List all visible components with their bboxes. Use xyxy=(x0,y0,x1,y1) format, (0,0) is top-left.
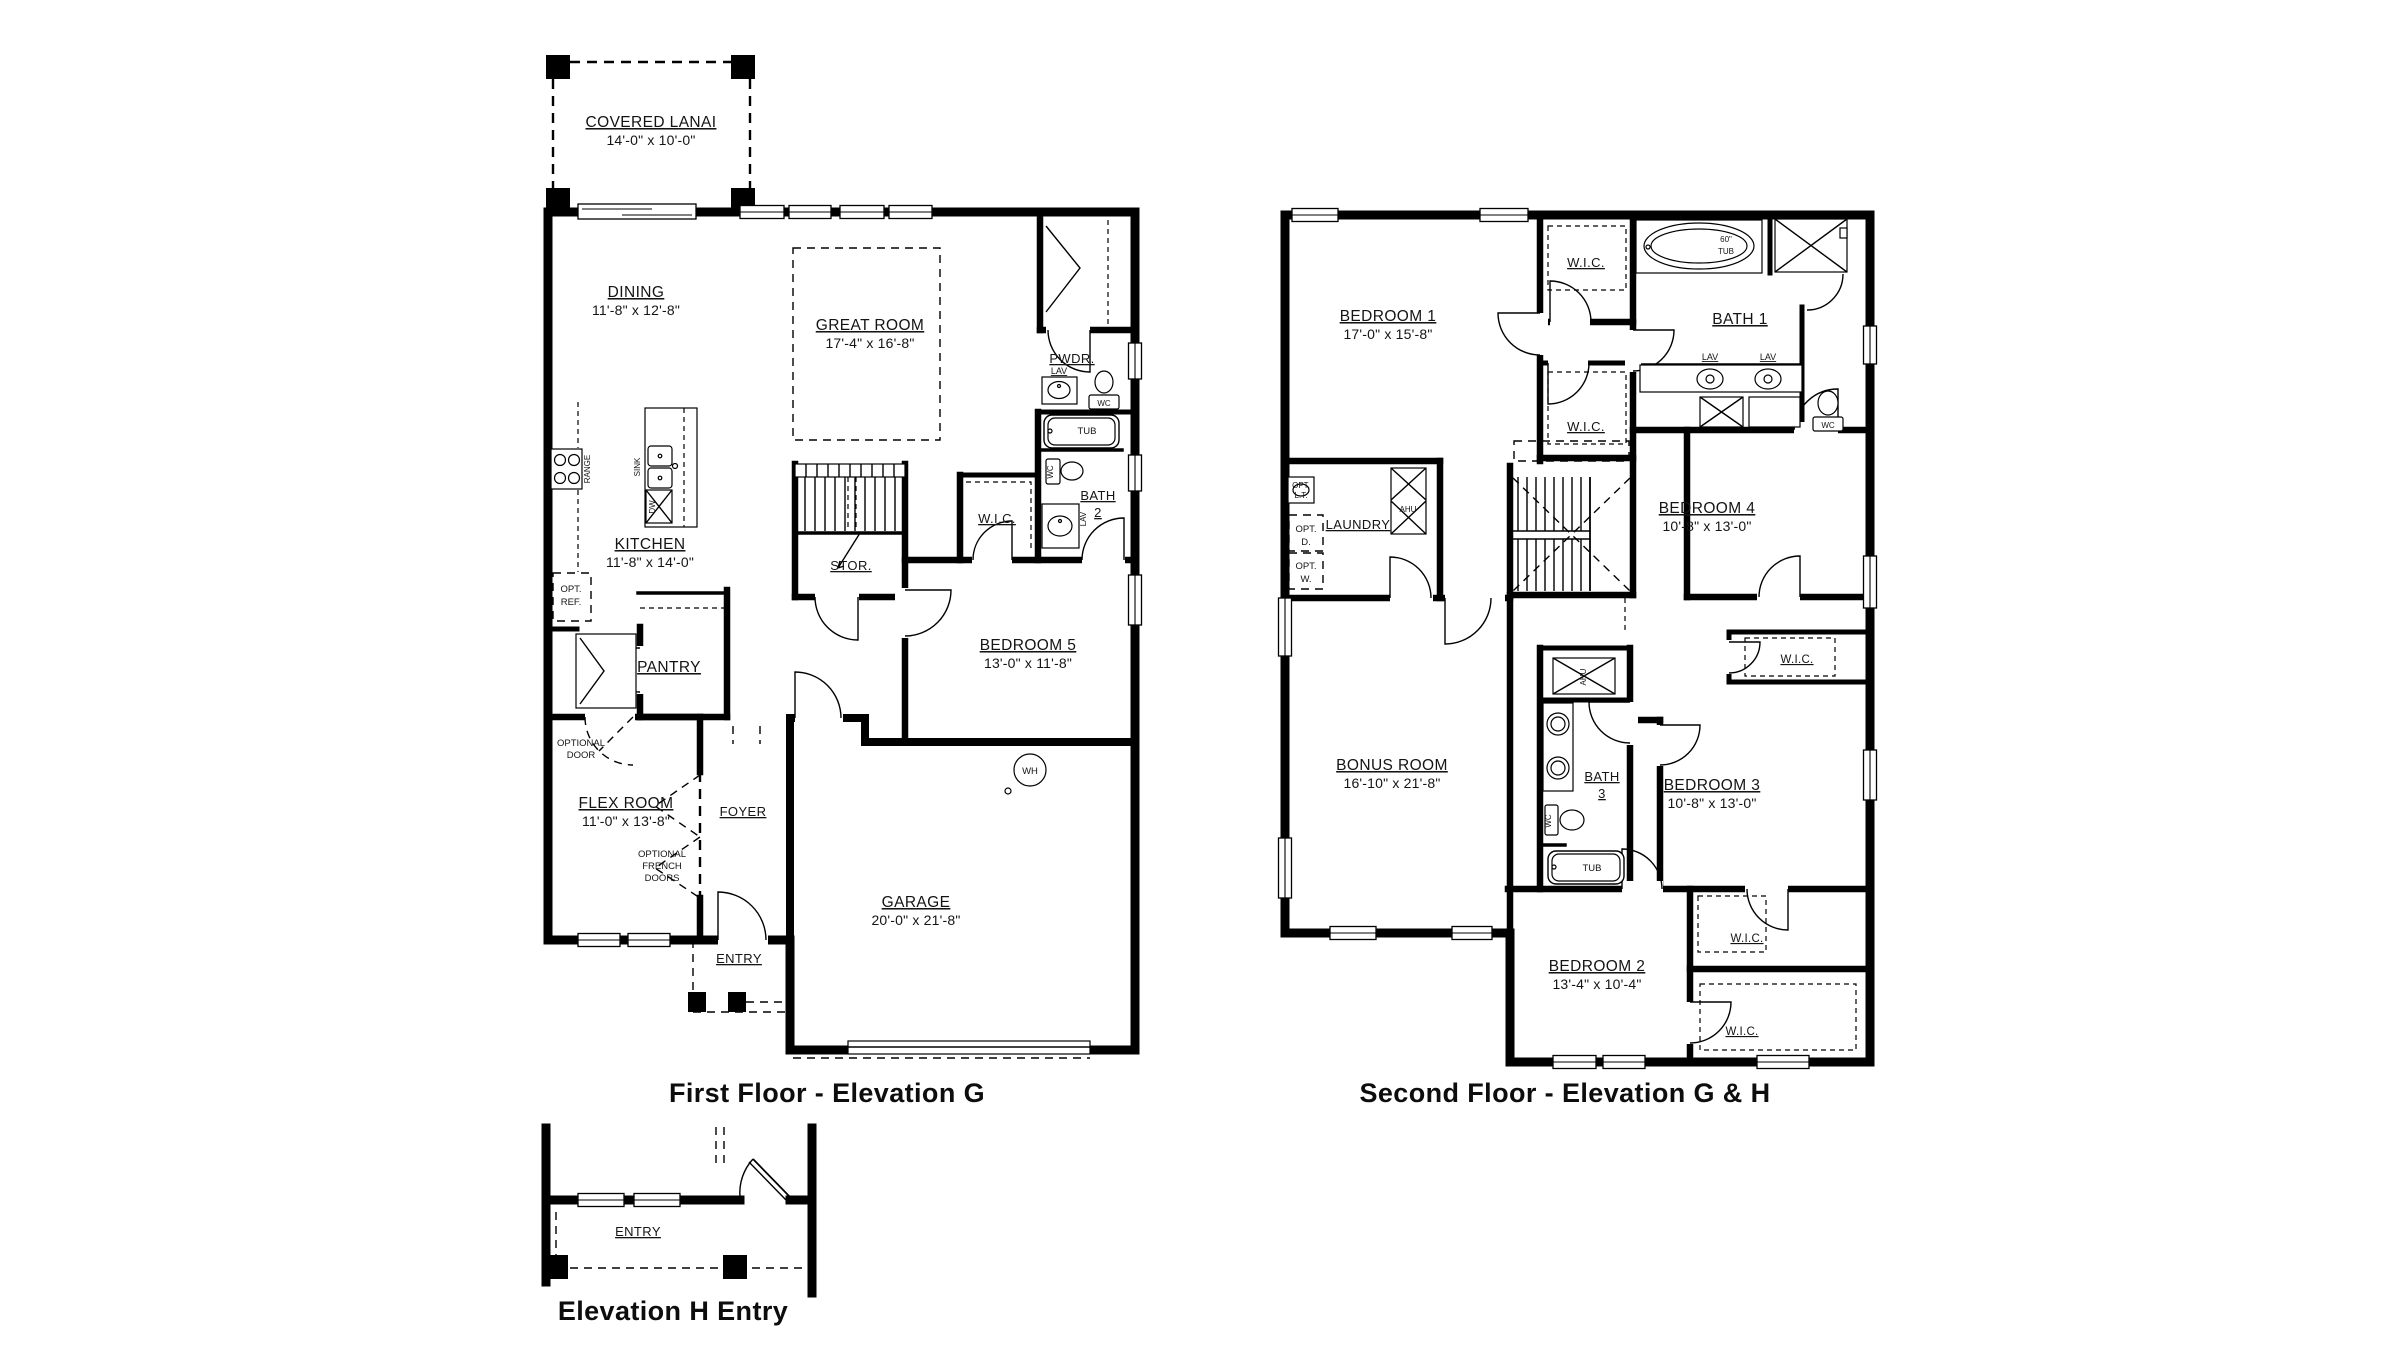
room-dims-bed4: 10'-8" x 13'-0" xyxy=(1662,518,1751,534)
room-label-flex: FLEX ROOM xyxy=(579,795,674,812)
room-label-great-room: GREAT ROOM xyxy=(816,317,925,334)
first-floor-title: First Floor - Elevation G xyxy=(669,1078,985,1108)
tub60-label-1: 60" xyxy=(1720,235,1732,244)
first-floor-labels: COVERED LANAI 14'-0" x 10'-0" DINING 11'… xyxy=(557,114,1116,966)
room-label-garage: GARAGE xyxy=(882,894,951,911)
range-icon xyxy=(551,449,582,489)
garden-tub-icon xyxy=(1636,220,1762,273)
room-label-wic-d: W.I.C. xyxy=(1730,933,1763,945)
room-label-wic-e: W.I.C. xyxy=(1725,1026,1758,1038)
opt-d-label-2: D. xyxy=(1301,537,1311,548)
room-label-bed2: BEDROOM 2 xyxy=(1549,958,1646,975)
opt-lt-label-1: OPT. xyxy=(1292,481,1310,490)
room-label-bed5: BEDROOM 5 xyxy=(980,637,1077,654)
bath2-wc-label: WC xyxy=(1046,465,1055,479)
opt-ref-label-2: REF. xyxy=(561,597,582,608)
room-label-entry-detail: ENTRY xyxy=(615,1224,661,1239)
room-dims-flex: 11'-0" x 13'-8" xyxy=(582,813,670,829)
second-floor-title: Second Floor - Elevation G & H xyxy=(1359,1078,1770,1108)
room-label-wic1f: W.I.C. xyxy=(978,511,1016,526)
room-label-entry: ENTRY xyxy=(716,951,762,966)
room-label-foyer: FOYER xyxy=(720,804,767,819)
bath2-lav-label: LAV xyxy=(1079,511,1088,526)
powder-sink-icon xyxy=(1042,377,1077,404)
room-dims-garage: 20'-0" x 21'-8" xyxy=(871,912,960,928)
floorplan-sheet: COVERED LANAI 14'-0" x 10'-0" DINING 11'… xyxy=(0,0,2400,1350)
room-label-pwdr: PWDR. xyxy=(1049,351,1094,366)
room-label-lanai: COVERED LANAI xyxy=(586,114,717,131)
room-label-bed4: BEDROOM 4 xyxy=(1659,500,1756,517)
room-label-kitchen: KITCHEN xyxy=(615,536,686,553)
room-label-wic-b: W.I.C. xyxy=(1567,419,1605,434)
dw-label: DW xyxy=(648,500,657,514)
room-label-bath2-line1: BATH xyxy=(1080,488,1115,503)
room-dims-lanai: 14'-0" x 10'-0" xyxy=(606,132,695,148)
floorplan-drawing: COVERED LANAI 14'-0" x 10'-0" DINING 11'… xyxy=(0,0,2400,1350)
bath1-wc-label: WC xyxy=(1821,421,1835,430)
room-dims-kitchen: 11'-8" x 14'-0" xyxy=(606,554,694,570)
sink-label: SINK xyxy=(633,457,642,476)
first-floor-plan: COVERED LANAI 14'-0" x 10'-0" DINING 11'… xyxy=(546,55,1142,1108)
bath2-sink-icon xyxy=(1042,504,1079,548)
room-label-bonus: BONUS ROOM xyxy=(1336,757,1448,774)
bath1-lav-label-1: LAV xyxy=(1702,352,1718,362)
range-label: RANGE xyxy=(583,455,592,483)
room-dims-bed5: 13'-0" x 11'-8" xyxy=(984,655,1072,671)
french-doors-label-2: FRENCH xyxy=(642,861,682,872)
second-floor-wic-shelves xyxy=(1548,226,1856,1050)
room-label-bath3-line2: 3 xyxy=(1598,786,1606,801)
pwdr-wc-label: WC xyxy=(1097,399,1111,408)
room-label-bath3-line1: BATH xyxy=(1584,769,1619,784)
room-dims-bed1: 17'-0" x 15'-8" xyxy=(1343,326,1432,342)
wh-label: WH xyxy=(1022,766,1038,777)
room-dims-bed3: 10'-8" x 13'-0" xyxy=(1667,795,1756,811)
bath3-vanity xyxy=(1543,703,1573,791)
opt-w-label-2: W. xyxy=(1300,574,1311,585)
room-label-bath1: BATH 1 xyxy=(1712,311,1768,328)
room-dims-great-room: 17'-4" x 16'-8" xyxy=(825,335,914,351)
entry-detail-title: Elevation H Entry xyxy=(558,1296,788,1326)
bath3-wc-label: WC xyxy=(1544,814,1553,828)
second-floor-stairwell xyxy=(1512,441,1630,632)
room-label-pantry: PANTRY xyxy=(637,659,701,676)
room-label-wic-a: W.I.C. xyxy=(1567,255,1605,270)
room-dims-bed2: 13'-4" x 10'-4" xyxy=(1552,976,1641,992)
bath1-lav-label-2: LAV xyxy=(1760,352,1776,362)
room-label-bed1: BEDROOM 1 xyxy=(1340,308,1437,325)
opt-ref-label-1: OPT. xyxy=(560,584,581,595)
bath1-linen-closets xyxy=(1700,397,1800,427)
room-label-stor: STOR. xyxy=(830,558,872,573)
ahu-closet-laundry xyxy=(1391,468,1426,534)
opt-lt-label-2: L.T. xyxy=(1295,491,1308,500)
ahu-label-2: AHU xyxy=(1579,668,1588,685)
ahu-label-1: AHU xyxy=(1400,505,1417,514)
opt-w-label-1: OPT. xyxy=(1295,561,1316,572)
french-doors-label-3: DOORS xyxy=(645,873,680,884)
entry-detail-door xyxy=(740,1159,790,1200)
opt-d-label-1: OPT. xyxy=(1295,524,1316,535)
optional-door-label-2: DOOR xyxy=(567,750,596,761)
bath3-tub-label: TUB xyxy=(1583,863,1602,874)
room-label-bed3: BEDROOM 3 xyxy=(1664,777,1761,794)
room-label-wic-c: W.I.C. xyxy=(1780,654,1813,666)
first-floor-stairs xyxy=(795,464,905,568)
bath1-vanity xyxy=(1640,365,1802,392)
elevation-h-entry-plan: ENTRY Elevation H Entry xyxy=(544,1127,812,1326)
french-doors-label-1: OPTIONAL xyxy=(638,849,686,860)
tub60-label-2: TUB xyxy=(1718,247,1734,256)
room-label-dining: DINING xyxy=(608,284,665,301)
second-floor-plan: BEDROOM 1 17'-0" x 15'-8" W.I.C. BATH 1 … xyxy=(1279,209,1877,1109)
room-label-laundry: LAUNDRY xyxy=(1326,517,1391,532)
shower-icon xyxy=(1775,219,1847,272)
pwdr-lav-label: LAV xyxy=(1051,366,1067,376)
room-dims-dining: 11'-8" x 12'-8" xyxy=(592,302,680,318)
room-dims-bonus: 16'-10" x 21'-8" xyxy=(1343,775,1440,791)
room-label-bath2-line2: 2 xyxy=(1094,505,1102,520)
bath2-tub-label: TUB xyxy=(1078,426,1097,437)
optional-door-label-1: OPTIONAL xyxy=(557,738,605,749)
